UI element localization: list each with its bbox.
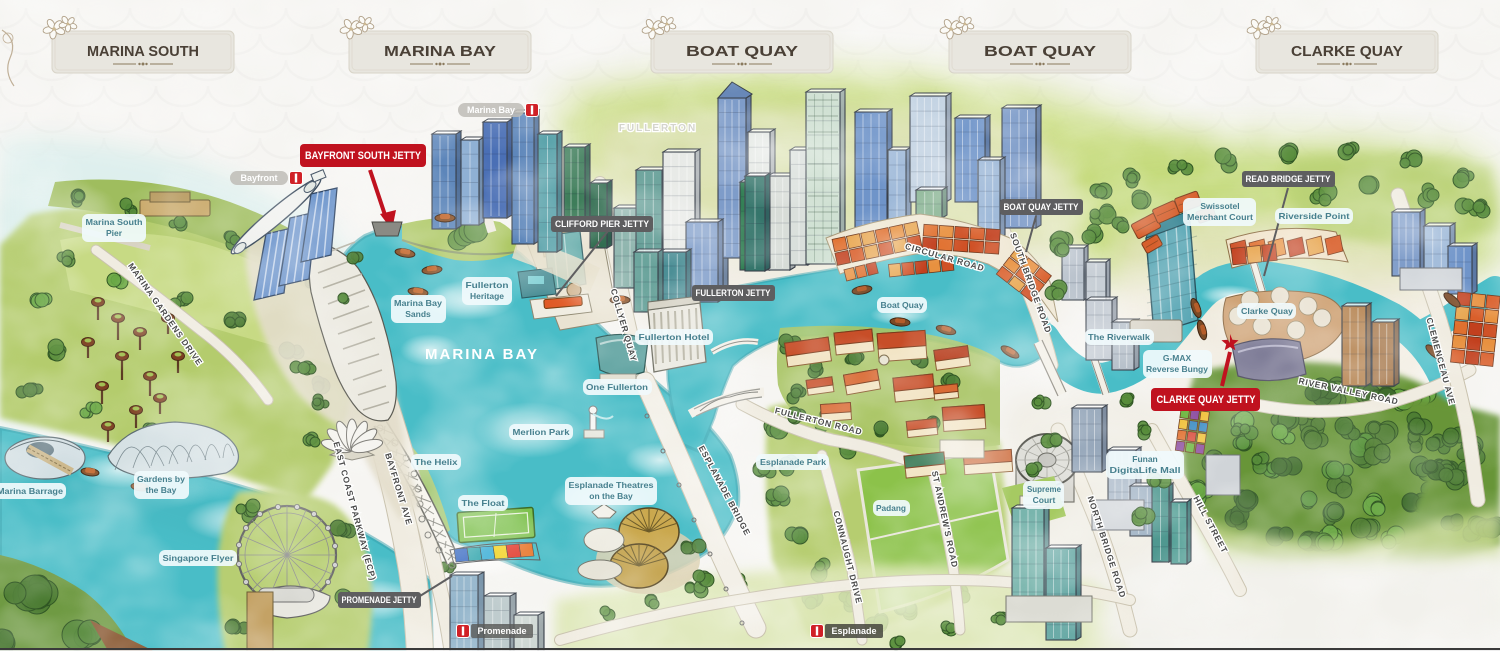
svg-text:The Riverwalk: The Riverwalk (1088, 332, 1150, 342)
svg-text:The Helix: The Helix (415, 457, 458, 467)
svg-text:on the Bay: on the Bay (589, 491, 633, 501)
svg-text:One Fullerton: One Fullerton (586, 382, 648, 392)
svg-text:Fullerton: Fullerton (466, 280, 509, 290)
svg-text:FULLERTON JETTY: FULLERTON JETTY (696, 288, 771, 298)
svg-text:READ BRIDGE JETTY: READ BRIDGE JETTY (1246, 174, 1331, 184)
svg-text:Merchant Court: Merchant Court (1187, 212, 1253, 222)
svg-text:G-MAX: G-MAX (1163, 353, 1192, 363)
svg-text:Esplanade Theatres: Esplanade Theatres (569, 480, 654, 490)
svg-text:Riverside Point: Riverside Point (1279, 211, 1350, 221)
svg-text:CLIFFORD PIER JETTY: CLIFFORD PIER JETTY (555, 219, 649, 229)
svg-text:BOAT QUAY: BOAT QUAY (984, 44, 1096, 60)
svg-text:Esplanade Park: Esplanade Park (760, 457, 826, 467)
svg-text:Supreme: Supreme (1027, 484, 1061, 494)
svg-text:CLARKE QUAY JETTY: CLARKE QUAY JETTY (1157, 394, 1257, 406)
svg-text:Promenade: Promenade (477, 626, 526, 636)
svg-text:The Float: The Float (462, 498, 505, 508)
svg-text:Bayfront: Bayfront (240, 173, 277, 183)
svg-text:Marina Bay: Marina Bay (394, 298, 442, 308)
svg-text:Boat Quay: Boat Quay (881, 300, 924, 310)
svg-text:FULLERTON: FULLERTON (619, 123, 697, 134)
svg-text:Gardens by: Gardens by (137, 474, 185, 484)
svg-text:MARINA BAY: MARINA BAY (384, 44, 496, 60)
svg-text:Reverse Bungy: Reverse Bungy (1146, 364, 1208, 374)
svg-text:Pier: Pier (106, 228, 123, 238)
svg-text:BOAT QUAY JETTY: BOAT QUAY JETTY (1004, 202, 1079, 212)
svg-text:the Bay: the Bay (146, 485, 177, 495)
svg-text:MARINA BAY: MARINA BAY (425, 346, 539, 363)
svg-text:DigitaLife Mall: DigitaLife Mall (1110, 465, 1181, 475)
svg-text:Marina Barrage: Marina Barrage (0, 486, 63, 496)
svg-text:PROMENADE JETTY: PROMENADE JETTY (342, 595, 417, 605)
svg-text:Padang: Padang (876, 503, 906, 513)
svg-text:BAYFRONT SOUTH JETTY: BAYFRONT SOUTH JETTY (305, 150, 422, 162)
svg-text:CLARKE QUAY: CLARKE QUAY (1291, 44, 1403, 60)
svg-text:Funan: Funan (1132, 454, 1158, 464)
svg-text:Marina Bay: Marina Bay (467, 105, 515, 115)
svg-text:BOAT QUAY: BOAT QUAY (686, 44, 798, 60)
svg-text:Merlion Park: Merlion Park (513, 427, 570, 437)
svg-text:Marina South: Marina South (86, 217, 143, 227)
svg-text:Swissotel: Swissotel (1200, 201, 1239, 211)
svg-text:Singapore Flyer: Singapore Flyer (163, 553, 235, 563)
svg-text:Esplanade: Esplanade (831, 626, 876, 636)
svg-text:Heritage: Heritage (470, 291, 504, 301)
svg-text:Court: Court (1033, 495, 1056, 505)
svg-text:Clarke Quay: Clarke Quay (1241, 306, 1293, 316)
svg-text:Sands: Sands (405, 309, 431, 319)
svg-text:MARINA SOUTH: MARINA SOUTH (87, 44, 199, 60)
svg-text:Fullerton Hotel: Fullerton Hotel (639, 332, 710, 342)
